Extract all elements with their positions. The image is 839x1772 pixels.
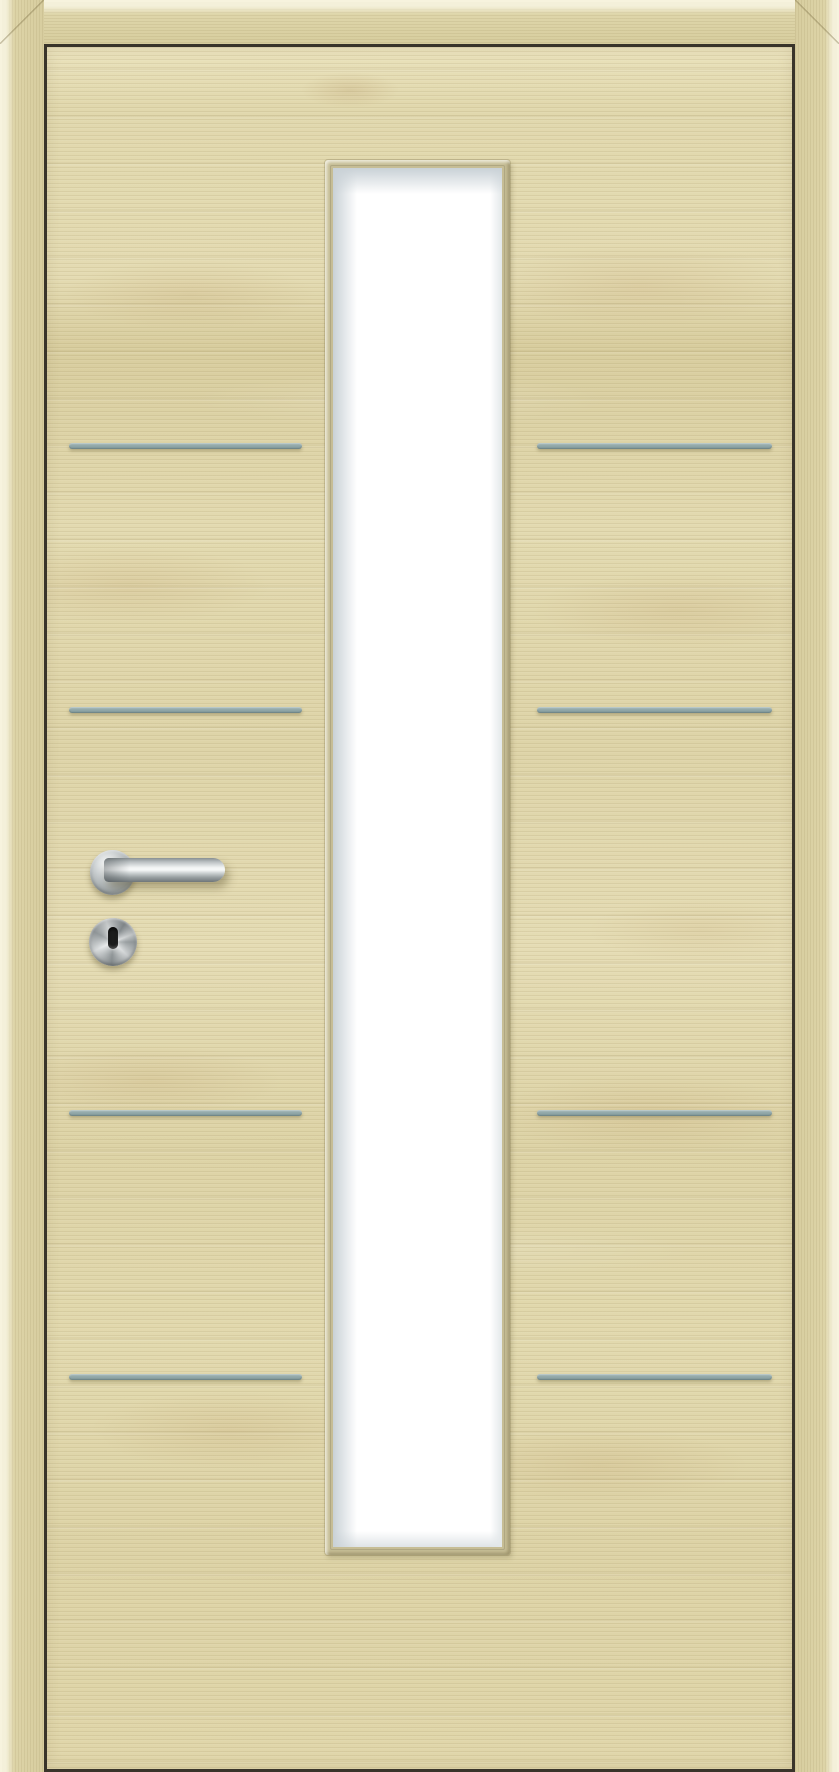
keyhole <box>108 927 118 949</box>
door-product-image <box>0 0 839 1772</box>
inlay-strip <box>537 443 772 449</box>
inlay-strip <box>69 1374 302 1380</box>
glass <box>333 168 502 1547</box>
inlay-strip <box>69 443 302 449</box>
inlay-strip <box>537 1110 772 1116</box>
inlay-strip <box>69 707 302 713</box>
door-lever <box>104 858 225 882</box>
inlay-strip <box>537 707 772 713</box>
glass-panel <box>325 160 510 1555</box>
inlay-strip <box>537 1374 772 1380</box>
inlay-strip <box>69 1110 302 1116</box>
